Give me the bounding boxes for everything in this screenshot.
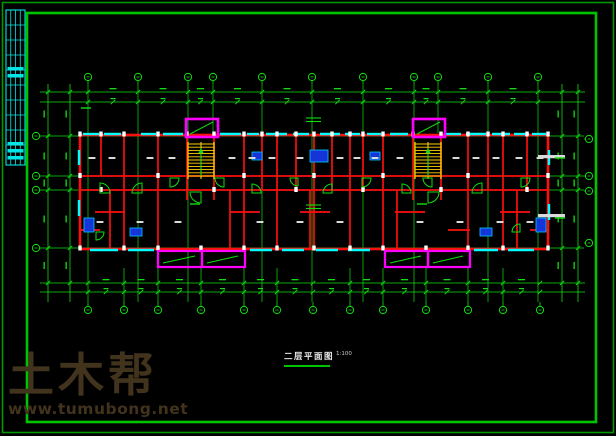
axis-grid-lines [32, 73, 592, 313]
annotation-marks [81, 107, 565, 218]
title-block-strip [6, 10, 25, 165]
drawing-scale: 1:100 [336, 351, 352, 357]
title-underline [284, 365, 330, 367]
drawing-title: 二层平面图1:100 [284, 344, 352, 367]
balcony-outlines [158, 251, 470, 267]
watermark-url: www.tumubong.net [8, 402, 188, 418]
cad-sheet: 二层平面图1:100 土木帮 www.tumubong.net [0, 0, 616, 436]
watermark-logo-text: 土木帮 [8, 352, 188, 398]
drawing-title-text: 二层平面图 [284, 352, 334, 362]
watermark: 土木帮 www.tumubong.net [8, 352, 188, 418]
